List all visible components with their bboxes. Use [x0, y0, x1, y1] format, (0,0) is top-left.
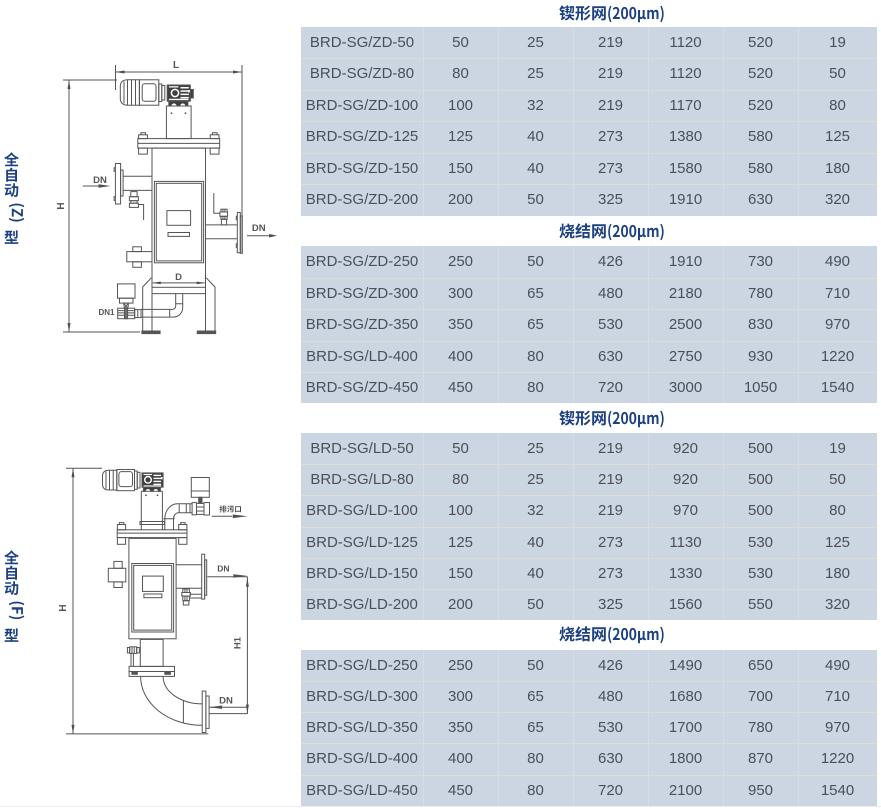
svg-text:DN: DN — [93, 175, 107, 186]
svg-text:H: H — [58, 604, 69, 611]
svg-text:D: D — [175, 272, 182, 283]
svg-text:H: H — [56, 202, 67, 209]
svg-text:DN: DN — [252, 223, 266, 234]
svg-text:DN: DN — [217, 564, 229, 574]
svg-text:DN: DN — [219, 696, 233, 707]
svg-text:H1: H1 — [233, 636, 244, 649]
svg-text:L: L — [173, 60, 179, 71]
svg-text:DN1: DN1 — [98, 308, 115, 317]
